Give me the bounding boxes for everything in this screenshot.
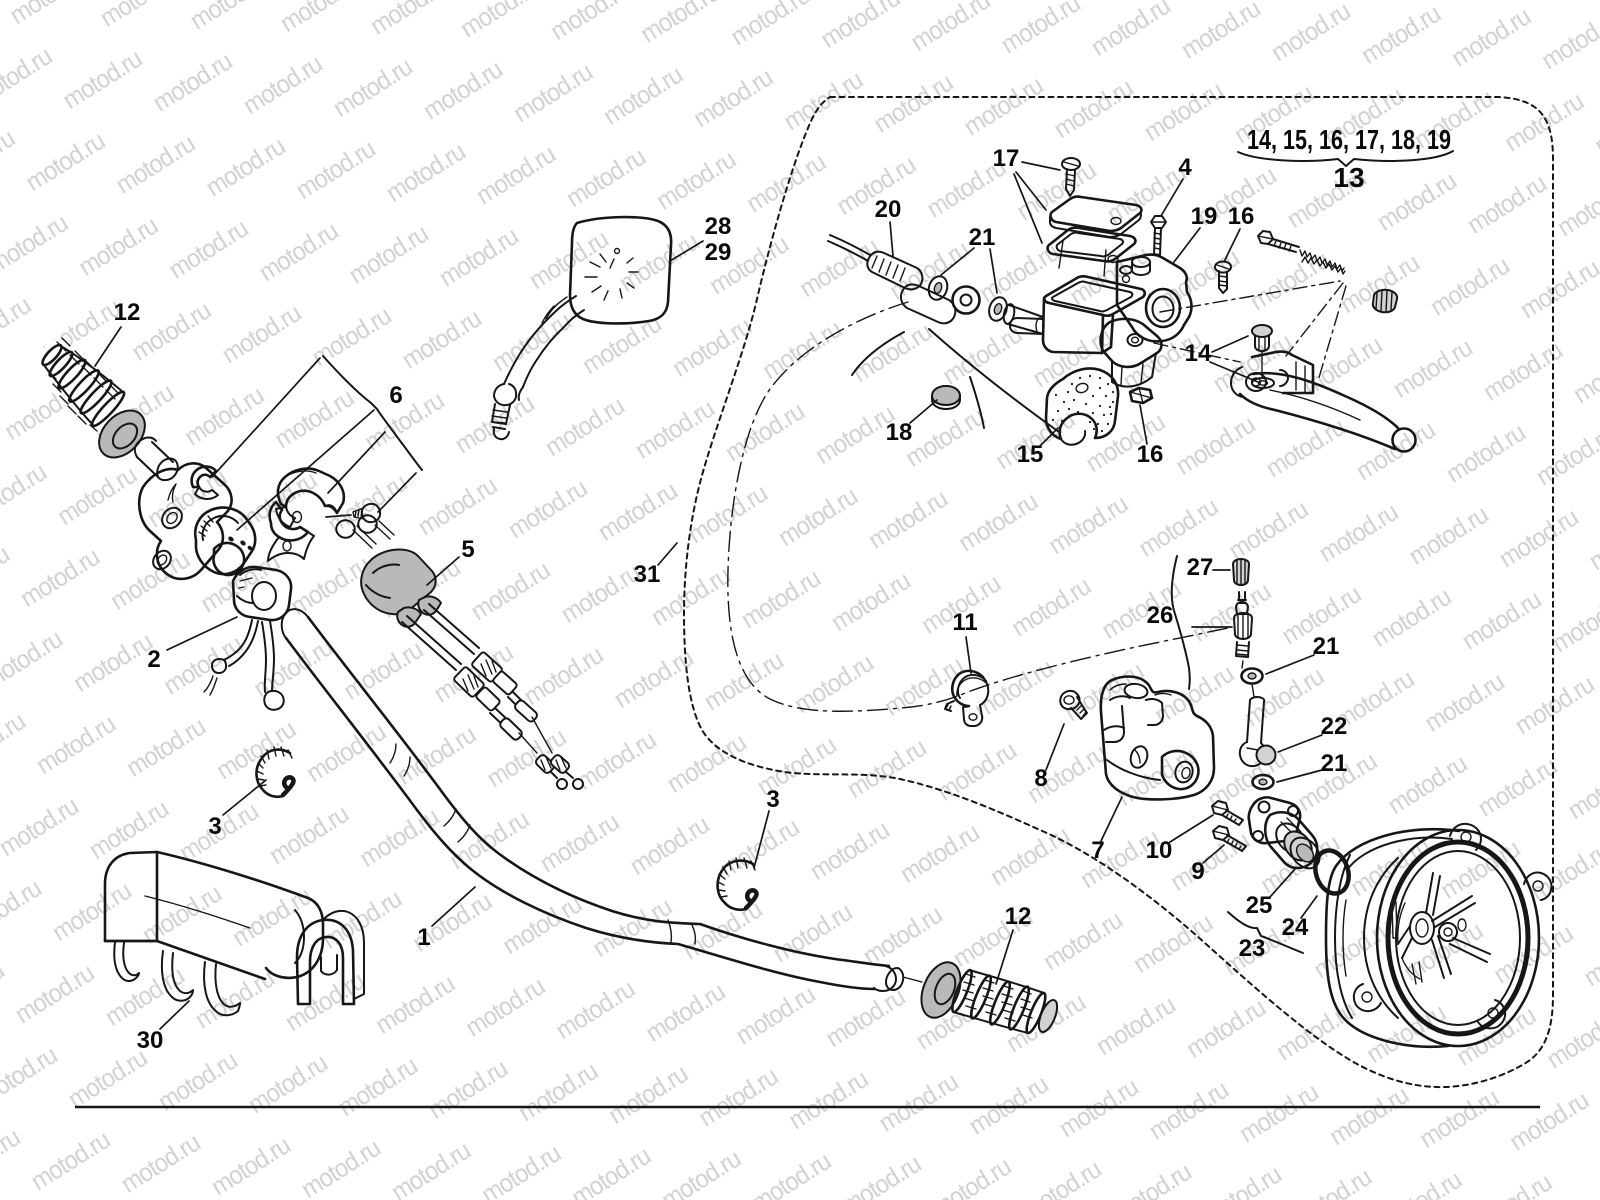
svg-text:16: 16 <box>1137 441 1164 468</box>
svg-text:14: 14 <box>1185 340 1212 367</box>
svg-text:17: 17 <box>993 145 1020 172</box>
svg-text:19: 19 <box>1191 203 1218 230</box>
svg-text:28: 28 <box>705 213 732 240</box>
svg-text:12: 12 <box>114 299 141 326</box>
svg-text:6: 6 <box>389 382 402 409</box>
svg-text:7: 7 <box>1091 837 1104 864</box>
svg-text:13: 13 <box>1333 162 1364 193</box>
svg-text:24: 24 <box>1282 914 1309 941</box>
svg-text:18: 18 <box>886 419 913 446</box>
svg-text:9: 9 <box>1191 858 1204 885</box>
svg-text:1: 1 <box>417 924 430 951</box>
svg-text:26: 26 <box>1147 602 1174 629</box>
svg-text:12: 12 <box>1005 903 1032 930</box>
svg-text:21: 21 <box>969 224 996 251</box>
svg-text:20: 20 <box>875 196 902 223</box>
svg-text:5: 5 <box>461 536 474 563</box>
svg-text:10: 10 <box>1146 837 1173 864</box>
svg-text:11: 11 <box>952 609 977 636</box>
svg-text:21: 21 <box>1321 750 1348 777</box>
svg-text:22: 22 <box>1321 713 1348 740</box>
svg-text:23: 23 <box>1239 935 1266 962</box>
svg-text:4: 4 <box>1178 154 1192 181</box>
svg-text:3: 3 <box>766 786 779 813</box>
svg-text:14, 15, 16, 17, 18, 19: 14, 15, 16, 17, 18, 19 <box>1247 124 1451 155</box>
svg-text:2: 2 <box>147 646 160 673</box>
svg-text:25: 25 <box>1246 892 1273 919</box>
svg-text:15: 15 <box>1017 441 1044 468</box>
svg-text:29: 29 <box>705 239 732 266</box>
svg-text:30: 30 <box>137 1027 164 1054</box>
svg-text:31: 31 <box>634 561 661 588</box>
svg-text:16: 16 <box>1228 203 1255 230</box>
svg-text:3: 3 <box>208 813 221 840</box>
svg-text:21: 21 <box>1313 633 1340 660</box>
svg-text:27: 27 <box>1187 554 1214 581</box>
